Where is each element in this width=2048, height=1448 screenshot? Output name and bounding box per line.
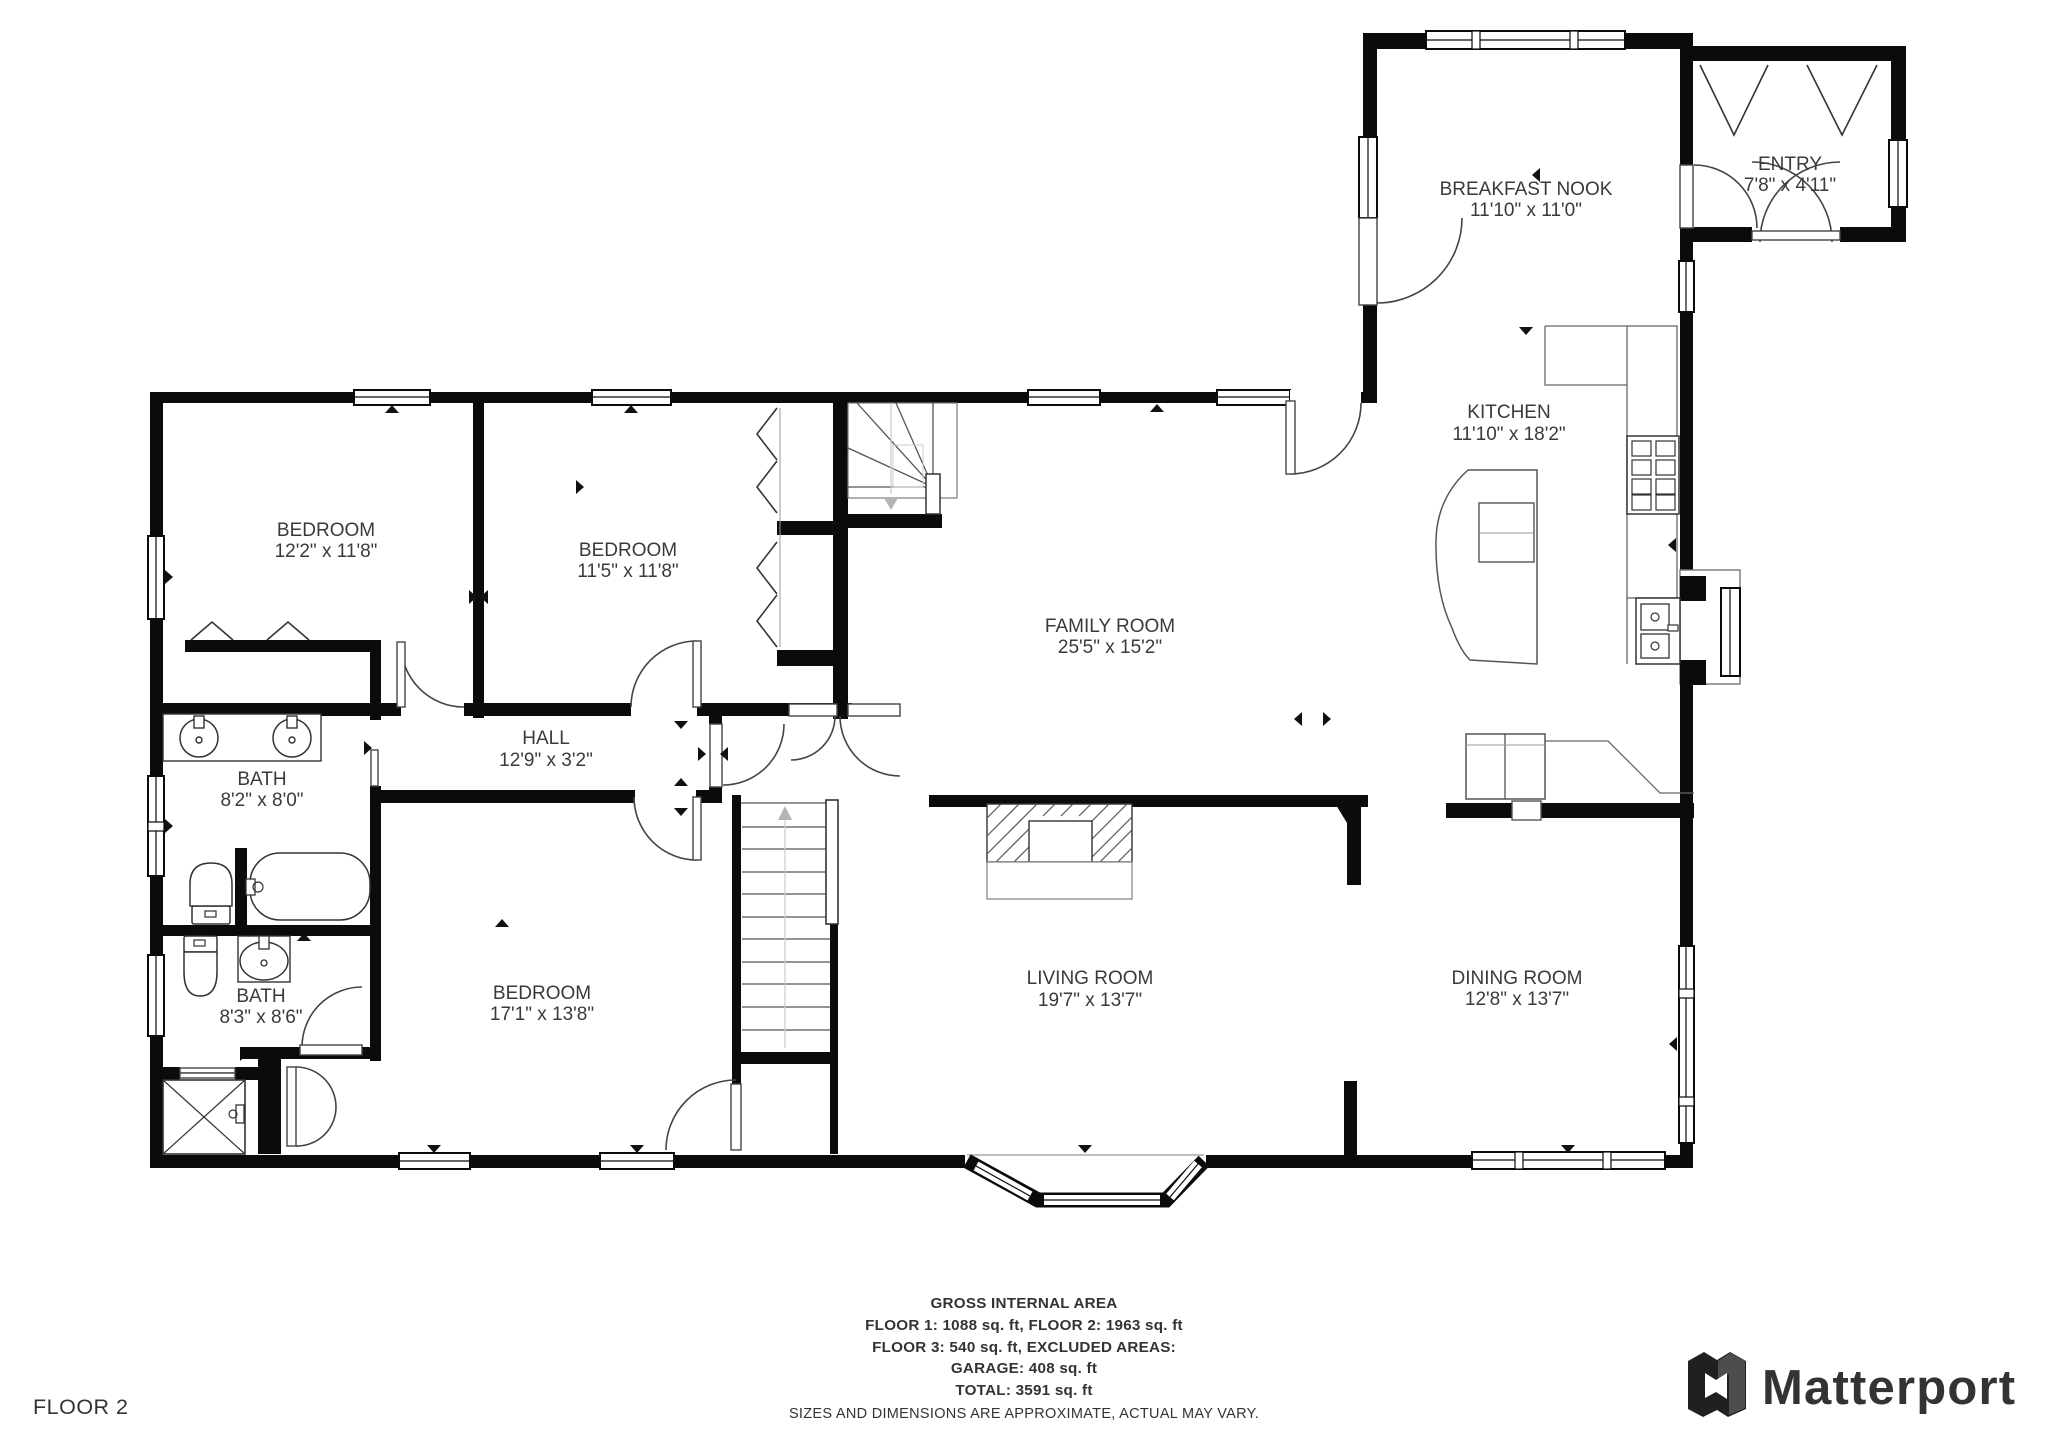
svg-text:DINING ROOM: DINING ROOM <box>1452 968 1583 989</box>
svg-text:ENTRY: ENTRY <box>1758 154 1822 175</box>
svg-text:8'3" x 8'6": 8'3" x 8'6" <box>219 1007 302 1028</box>
svg-text:GARAGE: 408 sq. ft: GARAGE: 408 sq. ft <box>951 1360 1097 1377</box>
svg-text:19'7" x 13'7": 19'7" x 13'7" <box>1038 990 1142 1011</box>
svg-text:TOTAL: 3591 sq. ft: TOTAL: 3591 sq. ft <box>955 1382 1092 1399</box>
svg-text:8'2" x 8'0": 8'2" x 8'0" <box>220 790 303 811</box>
svg-text:17'1" x 13'8": 17'1" x 13'8" <box>490 1004 594 1025</box>
svg-text:SIZES AND DIMENSIONS ARE APPRO: SIZES AND DIMENSIONS ARE APPROXIMATE, AC… <box>789 1406 1259 1422</box>
svg-text:BEDROOM: BEDROOM <box>493 983 591 1004</box>
svg-text:GROSS INTERNAL AREA: GROSS INTERNAL AREA <box>930 1295 1117 1312</box>
svg-text:LIVING ROOM: LIVING ROOM <box>1027 968 1154 989</box>
svg-text:7'8" x 4'11": 7'8" x 4'11" <box>1744 175 1836 196</box>
svg-text:BATH: BATH <box>236 986 285 1007</box>
svg-text:FLOOR 2: FLOOR 2 <box>33 1395 129 1419</box>
svg-text:HALL: HALL <box>522 728 570 749</box>
svg-text:FLOOR 1: 1088 sq. ft, FLOOR 2:: FLOOR 1: 1088 sq. ft, FLOOR 2: 1963 sq. … <box>865 1317 1183 1334</box>
svg-text:11'10" x 18'2": 11'10" x 18'2" <box>1452 424 1565 445</box>
svg-text:12'8" x 13'7": 12'8" x 13'7" <box>1465 989 1569 1010</box>
svg-text:BEDROOM: BEDROOM <box>277 520 375 541</box>
svg-text:25'5" x 15'2": 25'5" x 15'2" <box>1058 637 1162 658</box>
svg-text:FAMILY ROOM: FAMILY ROOM <box>1045 616 1175 637</box>
svg-text:11'5" x 11'8": 11'5" x 11'8" <box>577 561 678 582</box>
svg-text:11'10" x 11'0": 11'10" x 11'0" <box>1470 200 1582 221</box>
svg-text:12'9" x 3'2": 12'9" x 3'2" <box>499 750 593 771</box>
svg-text:BREAKFAST NOOK: BREAKFAST NOOK <box>1440 179 1613 200</box>
svg-text:KITCHEN: KITCHEN <box>1467 402 1550 423</box>
svg-text:BEDROOM: BEDROOM <box>579 540 677 561</box>
svg-text:BATH: BATH <box>237 769 286 790</box>
svg-text:FLOOR 3: 540 sq. ft, EXCLUDED: FLOOR 3: 540 sq. ft, EXCLUDED AREAS: <box>872 1339 1176 1356</box>
svg-text:Matterport: Matterport <box>1762 1361 2016 1415</box>
svg-text:12'2" x 11'8": 12'2" x 11'8" <box>275 541 378 562</box>
